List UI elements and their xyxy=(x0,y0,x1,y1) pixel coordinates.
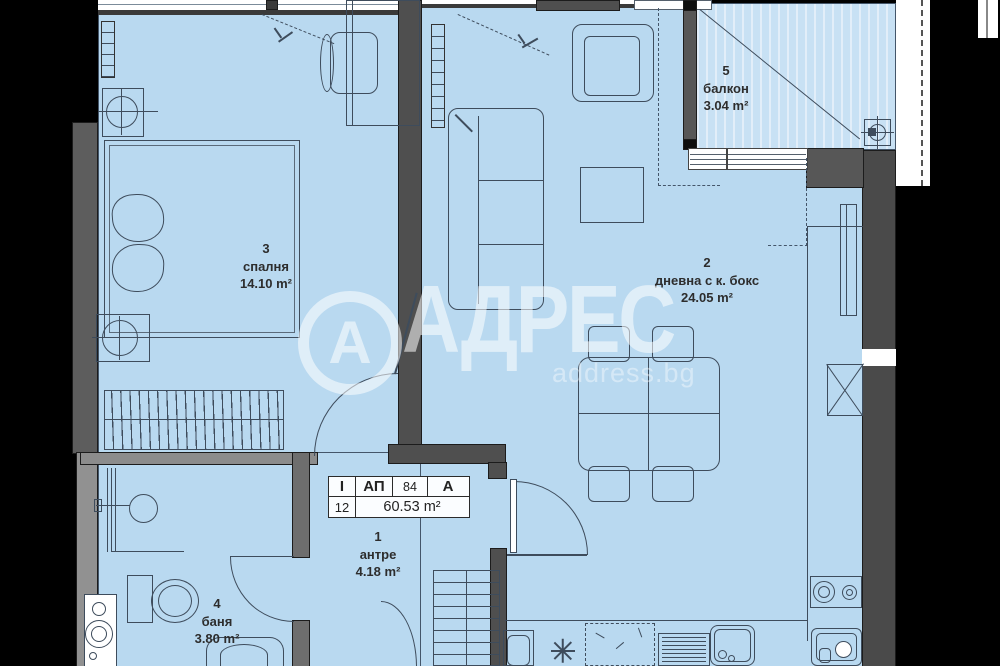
section-cell: А xyxy=(428,477,468,496)
floor-plan-canvas: 3 спалня 14.10 m² 2 дневна с к. бокс 24.… xyxy=(0,0,1000,666)
bath-right-wall-lower xyxy=(292,620,310,666)
faucet-icon xyxy=(718,650,727,659)
floor-roman-cell: I xyxy=(329,477,356,496)
bedroom-radiator xyxy=(101,21,115,78)
room-number: 5 xyxy=(666,62,786,80)
type-cell: АП xyxy=(356,477,393,496)
room-name: дневна с к. бокс xyxy=(627,272,787,290)
room-area: 14.10 m² xyxy=(196,275,336,293)
info-table-row: 12 60.53 m² xyxy=(329,497,469,517)
apartment-number-cell: 84 xyxy=(393,477,428,496)
right-outer-wall xyxy=(862,150,896,666)
tall-cabinet-line xyxy=(846,204,847,316)
kitchen-counter-bottom-edge xyxy=(505,620,807,621)
washing-machine-knob xyxy=(92,602,106,616)
sofa-cushion-line xyxy=(479,180,543,181)
bedroom-bottom-wall xyxy=(80,452,318,465)
room-area: 4.18 m² xyxy=(308,563,448,581)
balcony-wall-cap-top xyxy=(683,0,697,11)
slider-divider xyxy=(726,148,728,170)
overhang-dash-h1 xyxy=(658,185,720,186)
overhang-dash-v1 xyxy=(658,8,659,186)
balcony-bottom-wall xyxy=(806,148,864,188)
shaft-cross-h xyxy=(98,111,158,112)
slider-line-2 xyxy=(690,159,806,160)
slider-line-3 xyxy=(690,164,806,165)
armchair-seat xyxy=(584,36,640,96)
room-area: 3.04 m² xyxy=(666,97,786,115)
sofa xyxy=(448,108,544,310)
burner-inner xyxy=(846,589,853,596)
room-area: 3.80 m² xyxy=(147,630,287,648)
living-radiator xyxy=(431,24,445,128)
room-label-bedroom: 3 спалня 14.10 m² xyxy=(196,240,336,293)
bath-door-threshold xyxy=(230,556,294,557)
apartment-info-table: I АП 84 А 12 60.53 m² xyxy=(328,476,470,518)
left-outer-wall-upper xyxy=(72,122,98,454)
sofa-back-line xyxy=(478,116,479,304)
terrace-dashed-boundary xyxy=(921,0,923,186)
room-area: 24.05 m² xyxy=(627,289,787,307)
faucet-icon xyxy=(835,641,852,658)
room-label-balcony: 5 балкон 3.04 m² xyxy=(666,62,786,115)
neighbor-sliver-line xyxy=(986,0,988,38)
room-label-living: 2 дневна с к. бокс 24.05 m² xyxy=(627,254,787,307)
shower-head-icon xyxy=(129,494,158,523)
burner-inner xyxy=(818,586,830,598)
balcony-drain-cross-v xyxy=(877,116,878,149)
neighbor-terrace-area xyxy=(896,0,930,186)
washing-machine-drum-inner xyxy=(91,626,107,642)
hall-wardrobe-line xyxy=(466,570,467,666)
room-label-bath: 4 баня 3.80 m² xyxy=(147,595,287,648)
neighbor-sliver xyxy=(978,0,998,38)
balcony-drain-fill xyxy=(868,128,876,136)
hall-corner-wall xyxy=(488,462,507,479)
total-area-cell: 60.53 m² xyxy=(356,497,468,517)
washing-machine-dot xyxy=(89,652,97,660)
room-name: спалня xyxy=(196,258,336,276)
desk-chair xyxy=(330,32,378,94)
shower-line xyxy=(107,468,108,552)
info-table-row: I АП 84 А xyxy=(329,477,469,497)
sofa-cushion-line xyxy=(479,244,543,245)
slider-line-1 xyxy=(690,154,806,155)
coffee-table xyxy=(580,167,644,223)
sink-drainer xyxy=(819,648,831,663)
fridge-inner xyxy=(507,635,530,666)
dishwasher-grill xyxy=(662,637,706,662)
floor-number-cell: 12 xyxy=(329,497,356,517)
room-name: балкон xyxy=(666,80,786,98)
faucet-icon xyxy=(728,655,735,662)
shaft-cross-v xyxy=(121,89,122,135)
shaft-cross-h xyxy=(92,337,156,338)
dining-chair xyxy=(588,466,630,502)
tall-cabinet xyxy=(840,204,857,316)
room-name: баня xyxy=(147,613,287,631)
wardrobe-rail xyxy=(104,419,284,420)
hall-door-leaf xyxy=(510,479,517,553)
room-name: антре xyxy=(308,546,448,564)
room-number: 3 xyxy=(196,240,336,258)
living-top-wall-chunk xyxy=(536,0,620,11)
room-number: 4 xyxy=(147,595,287,613)
shower-valve xyxy=(94,499,102,512)
shower-line xyxy=(111,468,112,552)
overhang-dash-h2 xyxy=(768,245,808,246)
right-wall-window-gap xyxy=(862,349,896,366)
room-label-hall: 1 антре 4.18 m² xyxy=(308,528,448,581)
shower-line xyxy=(115,468,116,552)
shower-divider xyxy=(112,551,184,552)
dining-chair xyxy=(652,466,694,502)
room-number: 2 xyxy=(627,254,787,272)
shaft-cross-v xyxy=(119,316,120,360)
window-mullion xyxy=(266,0,278,10)
dining-table-line-v xyxy=(648,357,649,471)
room-number: 1 xyxy=(308,528,448,546)
hall-top-wall xyxy=(388,444,506,464)
